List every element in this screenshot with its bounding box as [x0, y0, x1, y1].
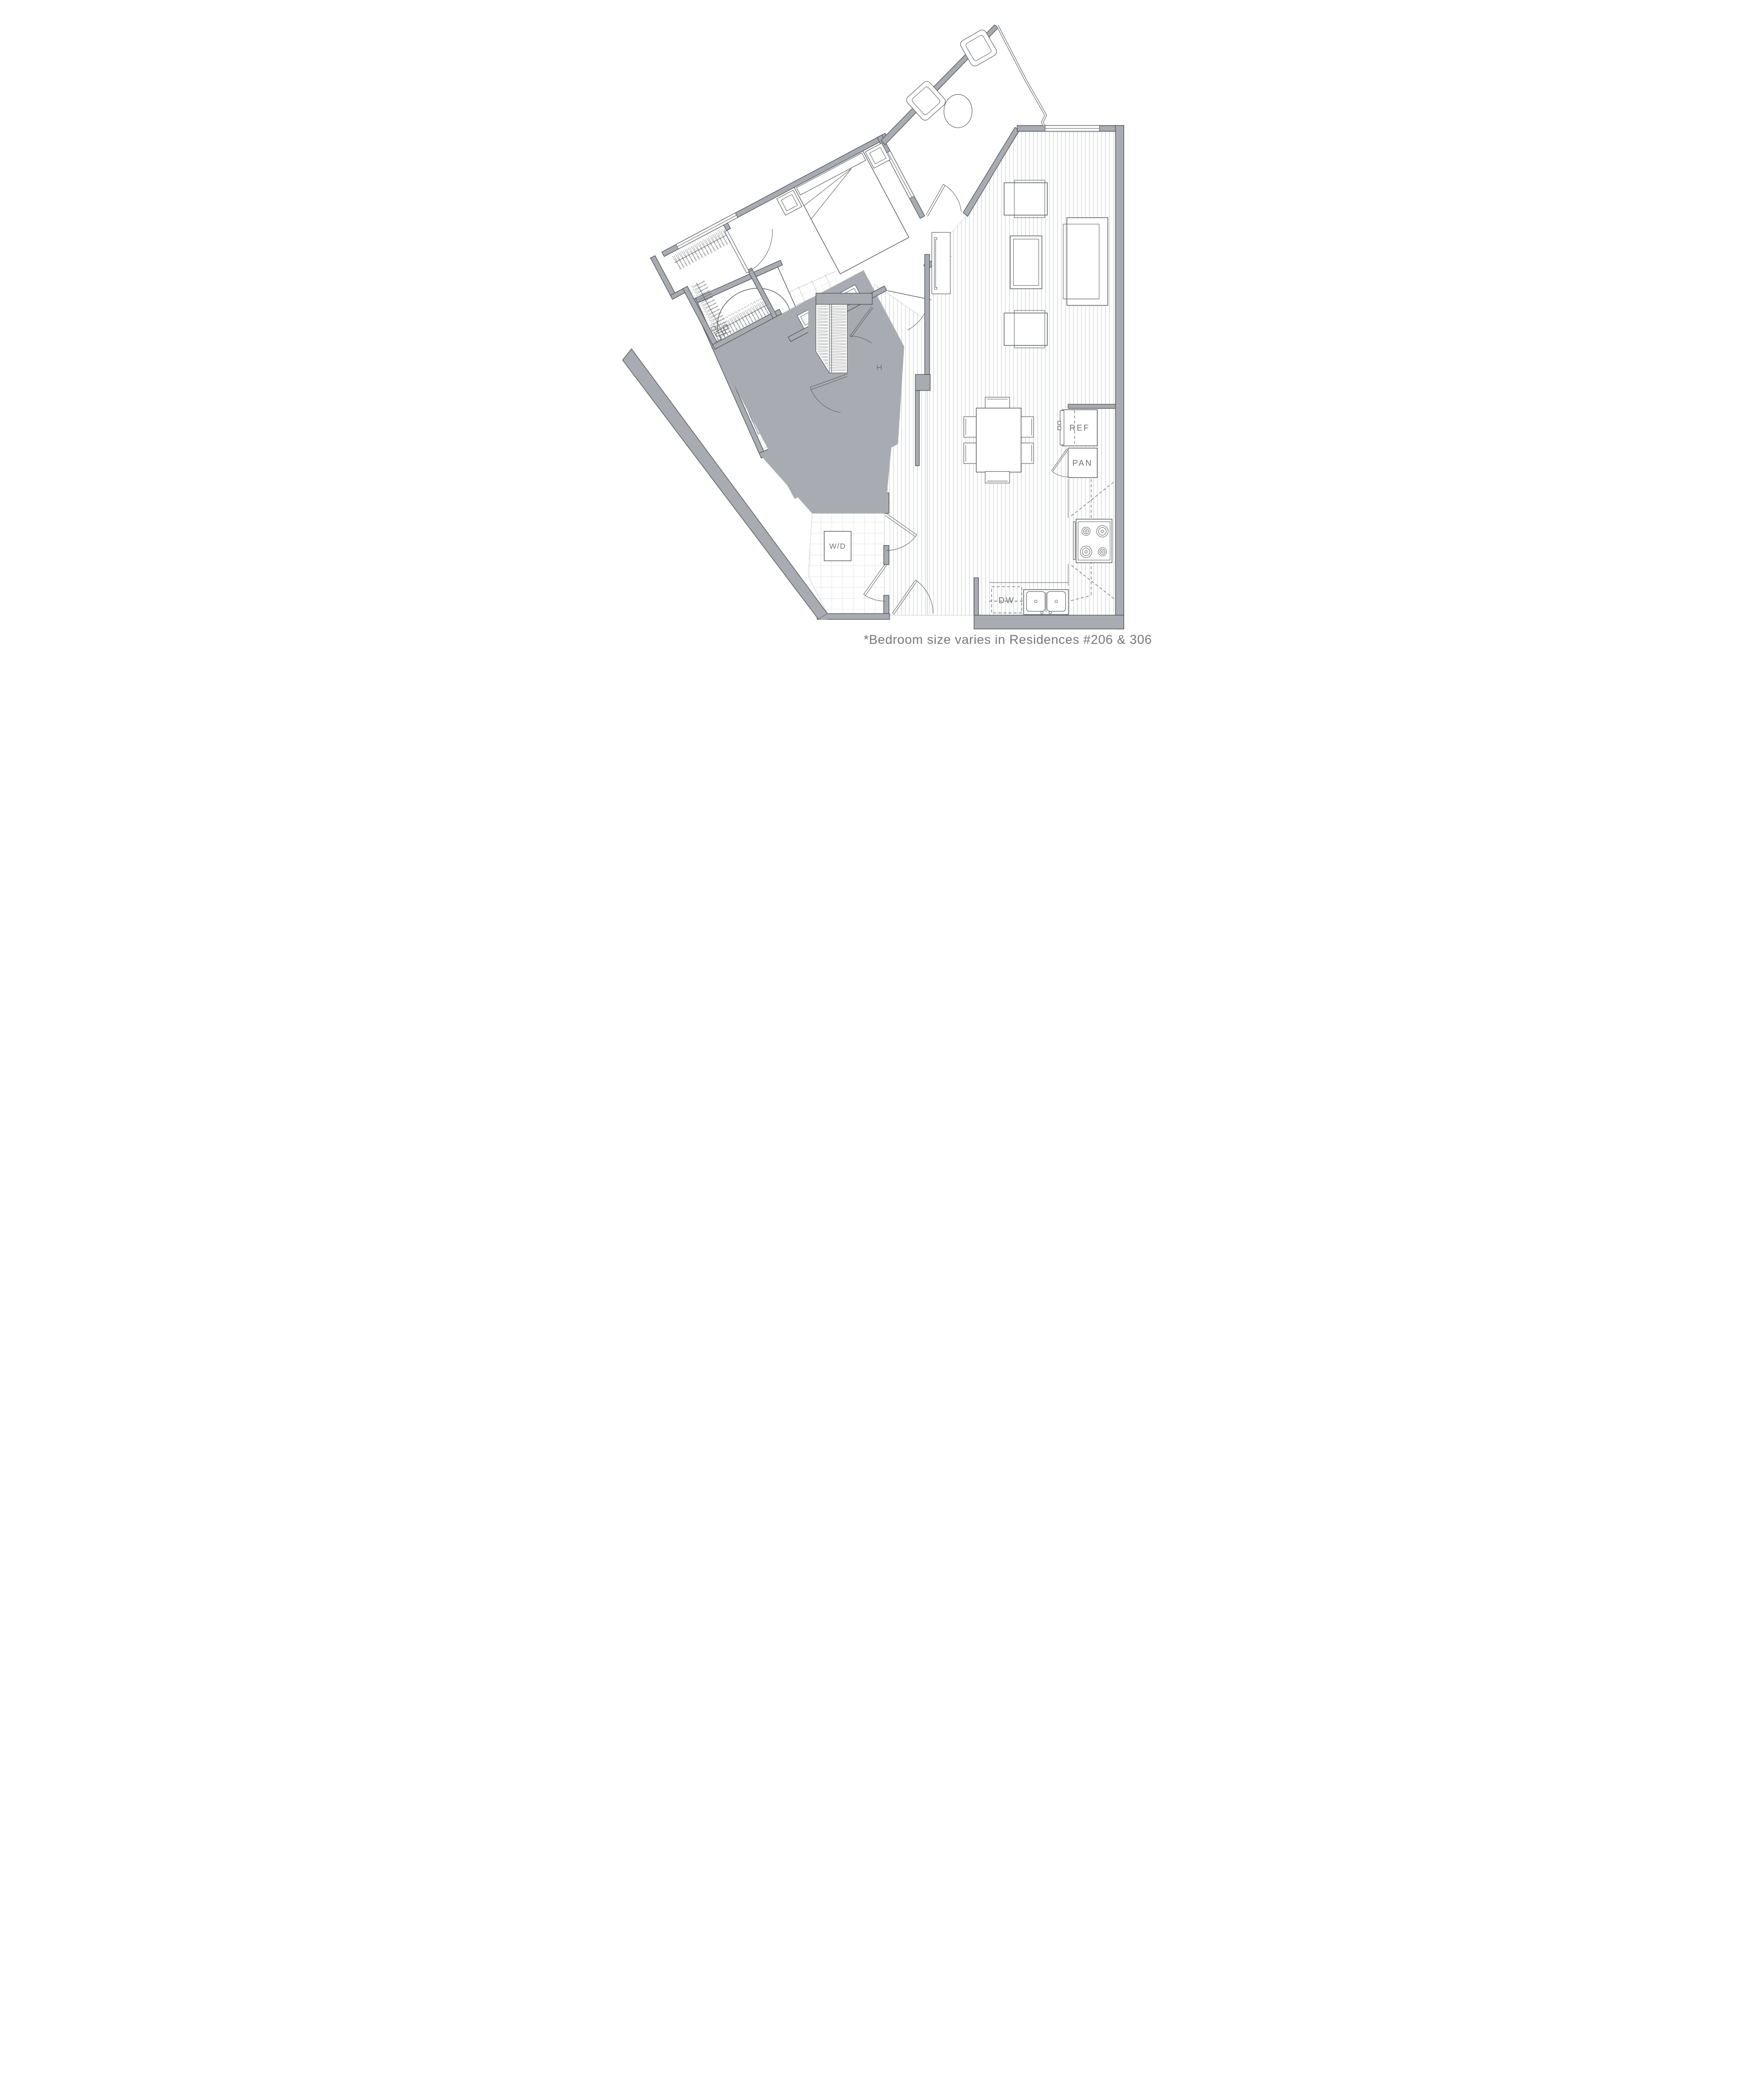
footnote: *Bedroom size varies in Residences #206 … — [864, 633, 1152, 647]
pantry-label: PAN — [1072, 458, 1093, 468]
stove — [1073, 519, 1112, 563]
armchair-2 — [1004, 311, 1047, 348]
right-wall — [1116, 126, 1124, 629]
vestibule-top-wall — [816, 293, 872, 304]
laundry-tile-floor — [808, 513, 884, 613]
closet-left-wall-upper — [650, 256, 677, 299]
bottom-wall-riser — [974, 578, 979, 615]
floor-plan: REF PAN DW W/D *Bedroom size varies in R… — [603, 0, 1161, 656]
balcony-table — [944, 94, 972, 128]
hall-wall-strip — [915, 391, 919, 466]
ref-header-wall — [1068, 404, 1116, 408]
hall-corner-stub — [915, 374, 930, 391]
living-left-wall — [925, 254, 929, 374]
floor-plan-page: REF PAN DW W/D *Bedroom size varies in R… — [603, 0, 1161, 656]
armchair-1 — [1004, 180, 1047, 218]
bed — [794, 151, 909, 274]
dining-table — [976, 408, 1021, 472]
refrigerator-label: REF — [1069, 424, 1090, 433]
bottom-wall-laundry — [817, 613, 890, 619]
laundry-wall-stub-bottom — [884, 595, 889, 614]
tv-console — [932, 233, 950, 294]
sofa — [1063, 218, 1108, 305]
laundry-wall-stub-mid — [884, 546, 889, 565]
kitchen-sink — [1024, 590, 1068, 614]
top-window — [1045, 126, 1099, 131]
coffee-table — [1010, 236, 1042, 289]
linen-left-wall — [808, 299, 816, 376]
bottom-wall-kitchen — [974, 615, 1124, 629]
washer-dryer-label: W/D — [829, 542, 846, 551]
dishwasher-label: DW — [999, 596, 1015, 605]
